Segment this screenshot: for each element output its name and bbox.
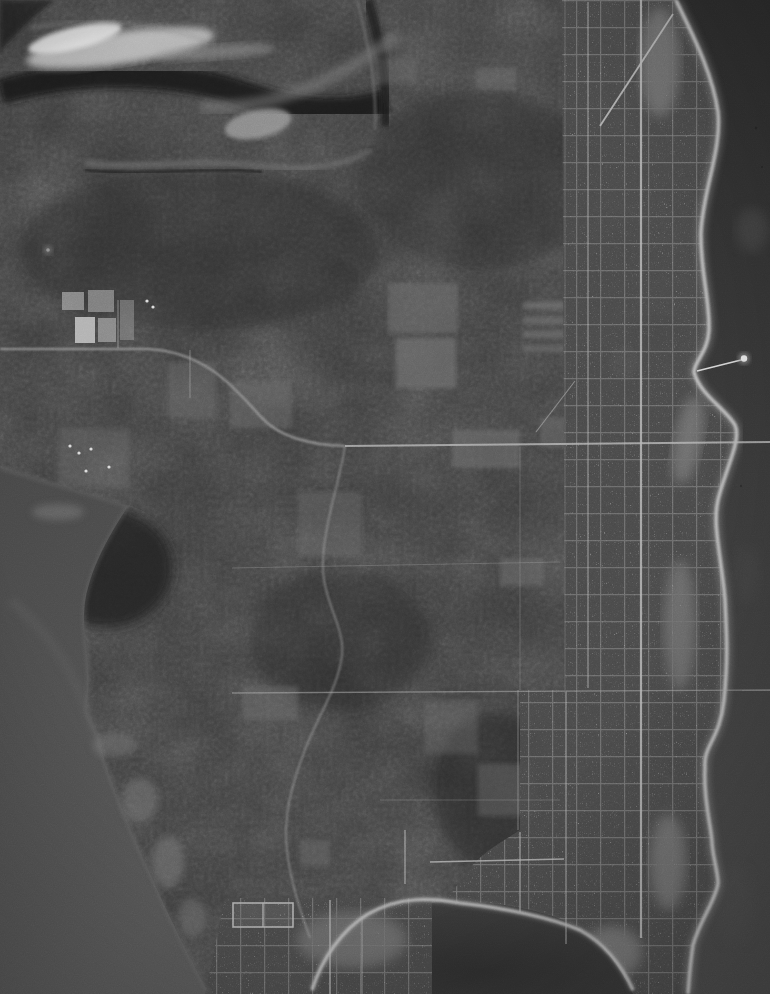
aerial-photo-canvas <box>0 0 770 994</box>
aerial-photo <box>0 0 770 994</box>
vignette <box>0 0 770 994</box>
